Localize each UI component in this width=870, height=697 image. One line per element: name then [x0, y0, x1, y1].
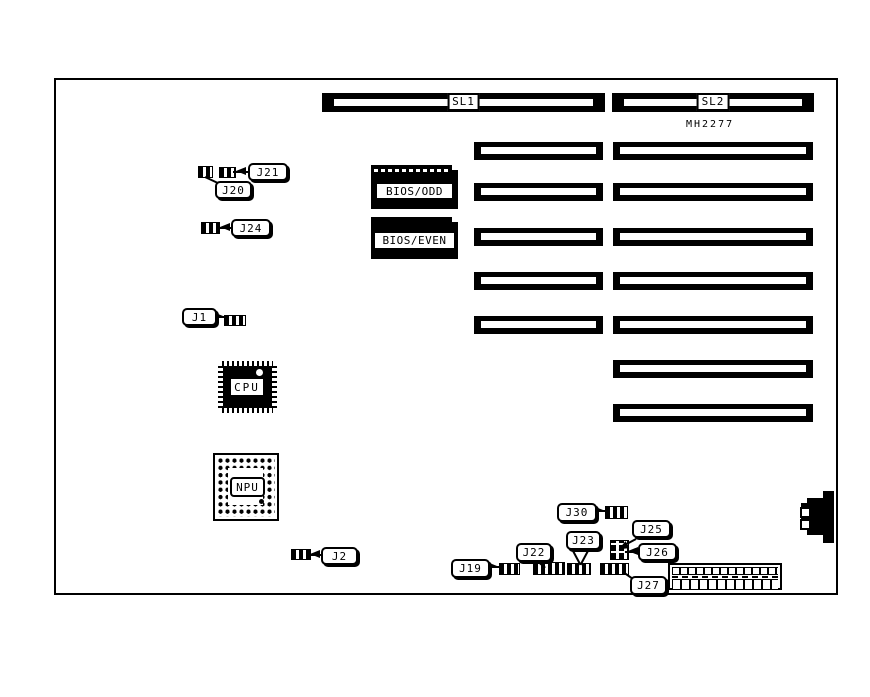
jumper-label-j30: J30: [557, 503, 597, 522]
slot-contact-stripe: [620, 233, 806, 240]
cpu-chip: CPU: [218, 361, 277, 413]
slot-contact-stripe: [481, 321, 596, 328]
slot-sl1: SL1: [322, 93, 605, 112]
npu-pin1-dot: [259, 499, 264, 504]
cpu-label: CPU: [231, 379, 263, 395]
cpu-pins-bottom: [222, 408, 273, 413]
leader-pointer-j2: [310, 550, 320, 558]
slot-contact-stripe: [620, 365, 806, 372]
jumper-label-j19: J19: [451, 559, 490, 578]
bios-even-chip: BIOS/EVEN: [371, 217, 458, 259]
chip-notch: [452, 217, 458, 222]
expansion-slot: [613, 183, 813, 201]
leader-pointer-j21: [236, 167, 246, 175]
slot-sl2-label: SL2: [697, 93, 730, 111]
expansion-slot: [474, 183, 603, 201]
slot-contact-stripe: [481, 188, 596, 195]
terminal-row-bottom: [672, 579, 778, 590]
jumper-label-j24: J24: [231, 219, 271, 237]
keyboard-connector: [800, 491, 838, 543]
jumper-label-j27: J27: [630, 576, 667, 595]
slot-contact-stripe: [620, 147, 806, 154]
connector-step: [823, 535, 834, 543]
chip-notch: [452, 165, 458, 170]
expansion-slot: [613, 272, 813, 290]
jumper-label-j26: J26: [638, 543, 677, 561]
chip-pin-dashes: [374, 169, 449, 172]
npu-socket: NPU: [213, 453, 279, 521]
leader-pointer-j26: [628, 547, 638, 555]
jumper-label-j20: J20: [215, 181, 252, 199]
pin-header-j22: [533, 562, 565, 575]
expansion-slot: [474, 228, 603, 246]
slot-contact-stripe: [620, 188, 806, 195]
jumper-label-j22: J22: [516, 543, 552, 562]
expansion-slot: [613, 142, 813, 160]
slot-sl2: SL2: [612, 93, 814, 112]
slot-contact-stripe: [620, 277, 806, 284]
slot-contact-stripe: [620, 321, 806, 328]
expansion-slot: [613, 404, 813, 422]
connector-pin-notch: [800, 519, 811, 530]
pin-header-j30: [605, 506, 628, 519]
pin-header-j19: [499, 563, 520, 575]
slot-contact-stripe: [620, 409, 806, 416]
leader-line-j19: [489, 566, 501, 568]
expansion-slot: [474, 272, 603, 290]
jumper-label-j2: J2: [321, 547, 358, 565]
cpu-pins-right: [272, 366, 277, 408]
motherboard-layout-diagram: SL1 SL2 MH2277 BIOS/ODD BIOS/EVEN CPU: [0, 0, 870, 697]
bios-odd-label: BIOS/ODD: [375, 182, 454, 200]
terminal-divider: [672, 576, 778, 578]
slot-contact-stripe: [481, 233, 596, 240]
expansion-slot: [613, 360, 813, 378]
jumper-label-j25: J25: [632, 520, 671, 538]
part-number-text: MH2277: [686, 119, 734, 130]
terminal-row-top: [672, 567, 778, 575]
npu-label: NPU: [230, 477, 265, 497]
expansion-slot: [474, 142, 603, 160]
expansion-slot: [613, 228, 813, 246]
leader-pointer-j24: [220, 223, 230, 231]
power-terminal-block: [668, 563, 782, 590]
expansion-slot: [474, 316, 603, 334]
bios-even-label: BIOS/EVEN: [373, 231, 456, 250]
cpu-pin1-dot: [256, 369, 263, 376]
jumper-label-j1: J1: [182, 308, 217, 326]
expansion-slot: [613, 316, 813, 334]
slot-sl1-label: SL1: [447, 93, 480, 111]
connector-pin-notch: [800, 507, 811, 518]
jumper-label-j23: J23: [566, 531, 601, 550]
bios-odd-chip: BIOS/ODD: [371, 165, 458, 209]
slot-contact-stripe: [481, 277, 596, 284]
slot-contact-stripe: [481, 147, 596, 154]
jumper-label-j21: J21: [248, 163, 288, 181]
